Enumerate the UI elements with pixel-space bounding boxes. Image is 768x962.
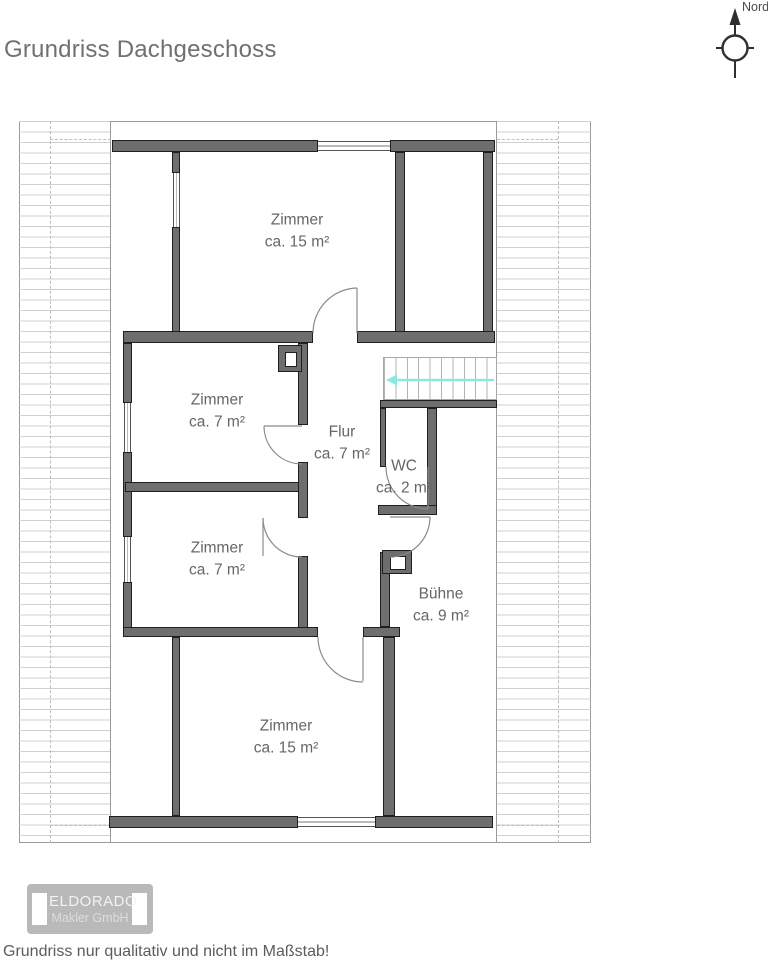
window — [298, 817, 375, 827]
disclaimer-text: Grundriss nur qualitativ und nicht im Ma… — [3, 943, 329, 961]
wall — [375, 816, 493, 828]
logo-line1: ELDORADO — [49, 893, 131, 910]
roof-dashed-line — [50, 121, 51, 843]
wall — [383, 637, 395, 816]
room-area: ca. 9 m² — [413, 605, 469, 627]
roof-dashed-line — [558, 121, 559, 843]
room-name: Zimmer — [265, 210, 330, 232]
wall — [298, 556, 308, 637]
room-name: Zimmer — [189, 390, 245, 412]
room-area: ca. 15 m² — [265, 231, 330, 253]
eldorado-logo: ELDORADO Makler GmbH — [27, 884, 153, 934]
chimney-icon — [278, 345, 302, 372]
room-name: Zimmer — [189, 538, 245, 560]
window — [124, 403, 131, 452]
wall — [125, 482, 308, 492]
stairs — [383, 357, 497, 400]
room-label-zimmer-mid-upper: Zimmer ca. 7 m² — [189, 390, 245, 433]
room-area: ca. 2 m² — [376, 477, 432, 499]
wall — [123, 627, 318, 637]
wall — [123, 331, 313, 343]
room-name: Bühne — [413, 584, 469, 606]
room-area: ca. 7 m² — [314, 443, 370, 465]
room-label-zimmer-top: Zimmer ca. 15 m² — [265, 210, 330, 253]
page-title: Grundriss Dachgeschoss — [4, 36, 277, 64]
chimney-flue — [285, 352, 297, 367]
wall — [298, 462, 308, 518]
wall — [172, 152, 180, 173]
window — [124, 537, 131, 582]
roof-dashed-line — [50, 825, 111, 826]
room-area: ca. 15 m² — [254, 737, 319, 759]
chimney-flue — [390, 556, 406, 570]
room-label-buehne: Bühne ca. 9 m² — [413, 584, 469, 627]
logo-block-left — [32, 893, 47, 925]
logo-line2: Makler GmbH — [49, 911, 131, 925]
wall — [172, 637, 180, 816]
wall — [395, 152, 405, 333]
room-name: WC — [376, 456, 432, 478]
room-label-zimmer-mid-lower: Zimmer ca. 7 m² — [189, 538, 245, 581]
window — [318, 141, 390, 151]
wall — [390, 140, 495, 152]
roof-hatch-left — [19, 121, 111, 843]
compass-north-label: Nord — [742, 0, 768, 14]
floor-plan-page: Grundriss Dachgeschoss Nord — [0, 0, 768, 962]
room-area: ca. 7 m² — [189, 411, 245, 433]
chimney-icon — [382, 550, 412, 574]
wall — [363, 627, 400, 637]
room-area: ca. 7 m² — [189, 559, 245, 581]
roof-dashed-line — [50, 139, 111, 140]
wall — [357, 331, 495, 343]
room-label-zimmer-bottom: Zimmer ca. 15 m² — [254, 716, 319, 759]
room-label-flur: Flur ca. 7 m² — [314, 422, 370, 465]
wall — [378, 505, 437, 515]
roof-dashed-line — [497, 139, 558, 140]
roof-dashed-line — [497, 825, 558, 826]
wall — [172, 227, 180, 338]
wall — [112, 140, 318, 152]
room-name: Flur — [314, 422, 370, 444]
wall — [123, 452, 132, 537]
wall — [380, 400, 497, 408]
wall — [109, 816, 298, 828]
wall — [483, 152, 493, 342]
roof-hatch-right — [496, 121, 591, 843]
window — [173, 173, 180, 227]
room-name: Zimmer — [254, 716, 319, 738]
wall — [123, 343, 132, 403]
room-label-wc: WC ca. 2 m² — [376, 456, 432, 499]
